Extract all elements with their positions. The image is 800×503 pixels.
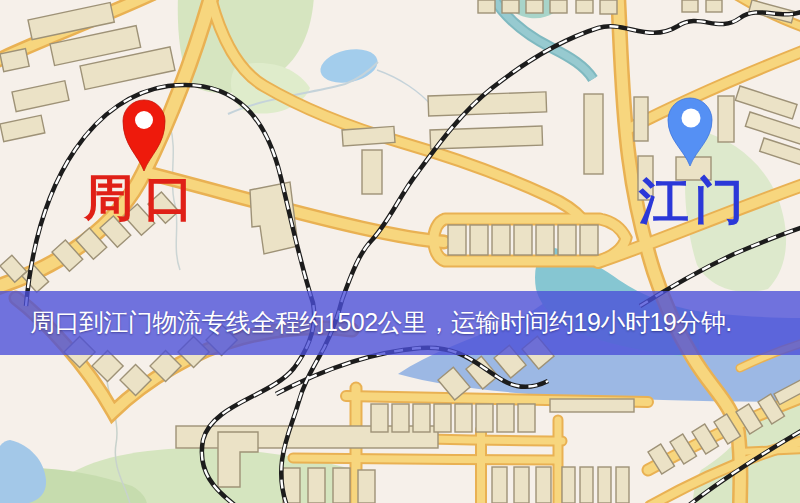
map-canvas[interactable]: [0, 0, 800, 503]
destination-city-label: 江门: [639, 176, 749, 226]
origin-city-label: 周口: [84, 173, 204, 223]
logistics-route-map[interactable]: 周口 江门 周口到江门物流专线全程约1502公里，运输时间约19小时19分钟.: [0, 0, 800, 503]
route-info-banner: 周口到江门物流专线全程约1502公里，运输时间约19小时19分钟.: [0, 291, 800, 355]
route-info-text: 周口到江门物流专线全程约1502公里，运输时间约19小时19分钟.: [0, 291, 800, 353]
